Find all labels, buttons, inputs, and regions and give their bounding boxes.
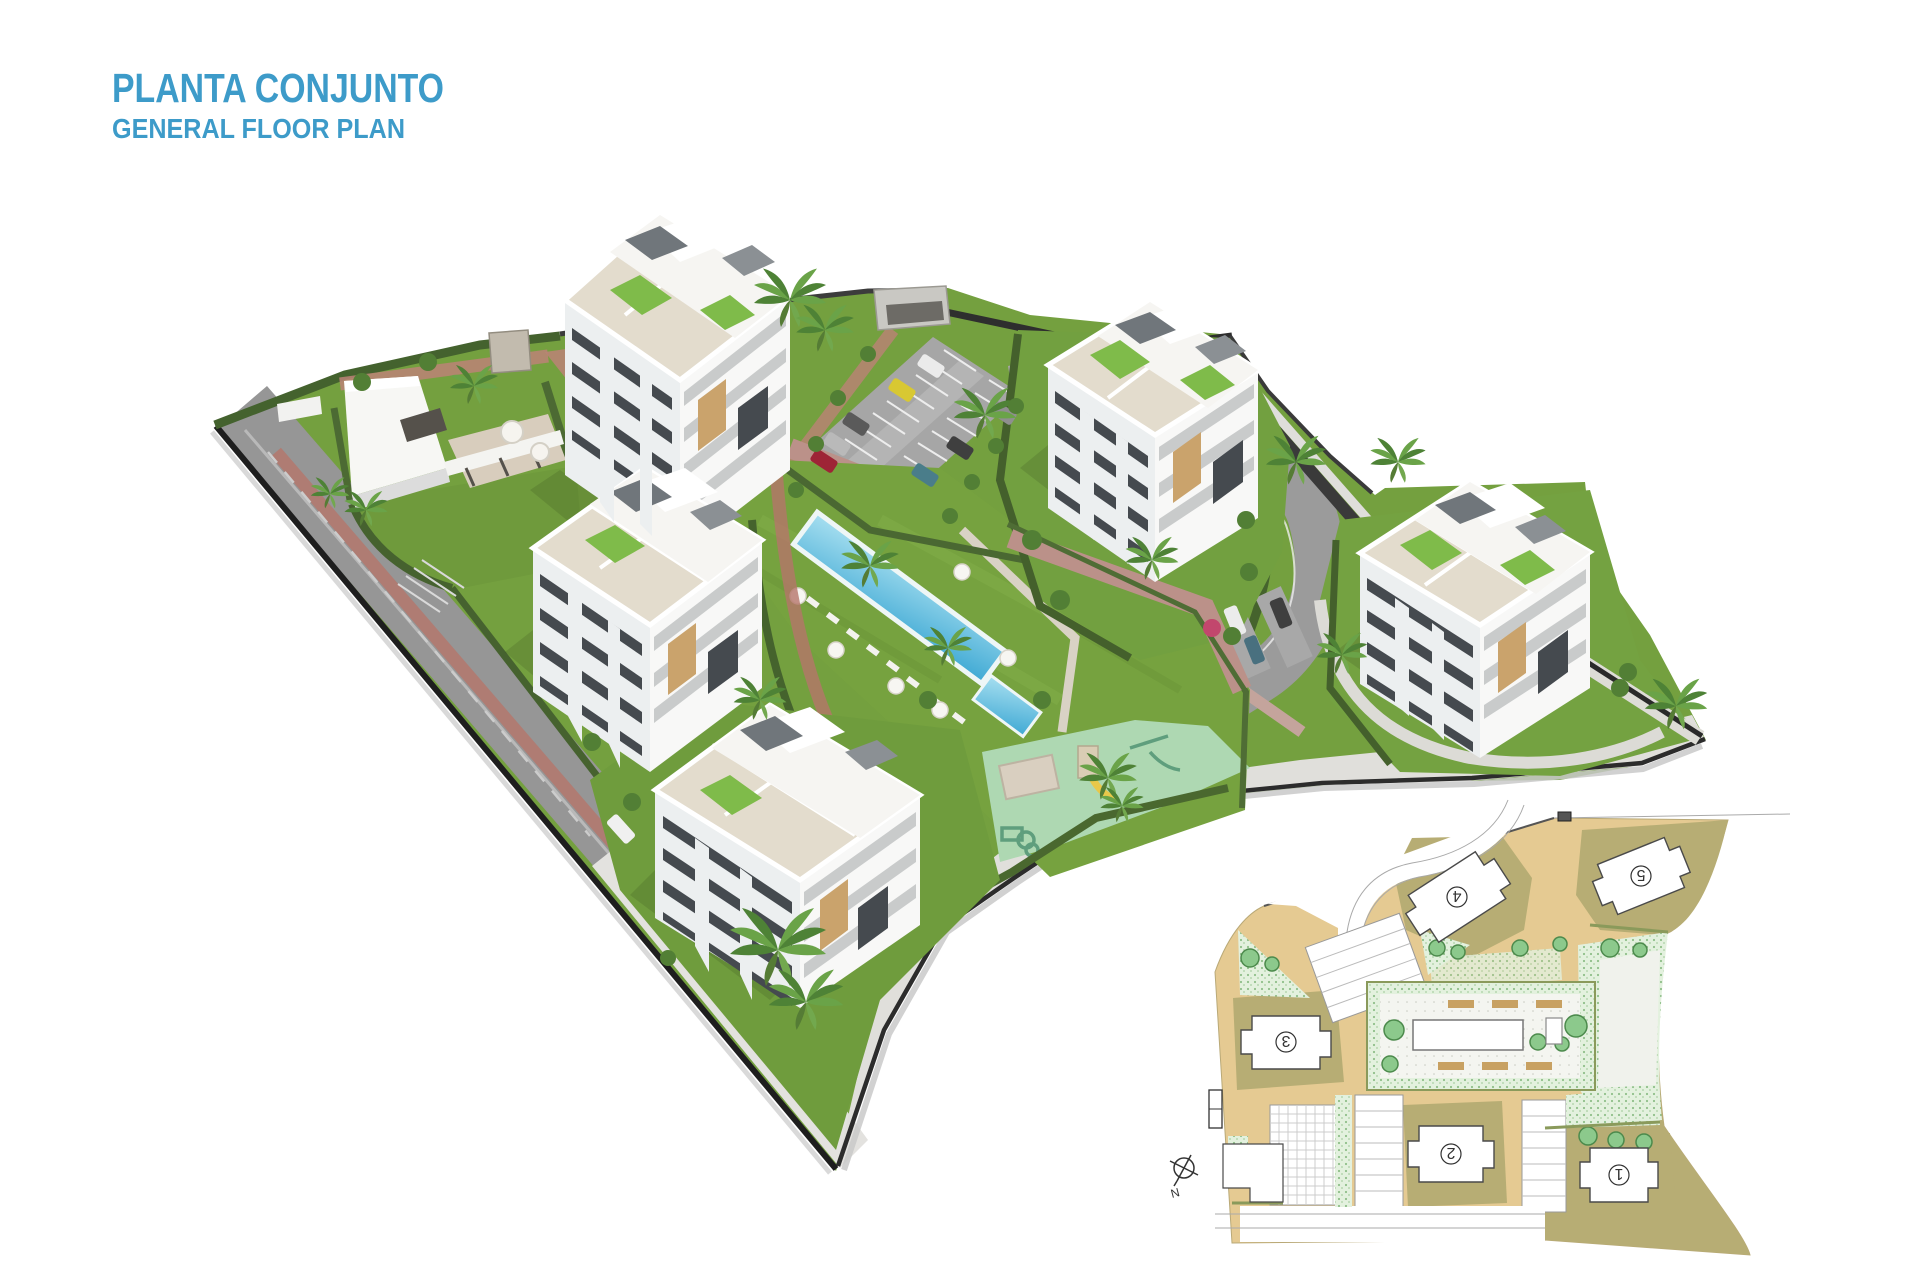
svg-text:1: 1	[1614, 1165, 1623, 1182]
svg-text:4: 4	[1452, 887, 1461, 904]
svg-text:5: 5	[1636, 866, 1645, 883]
svg-text:3: 3	[1281, 1032, 1290, 1049]
svg-text:GENERAL FLOOR PLAN: GENERAL FLOOR PLAN	[112, 113, 405, 144]
svg-text:PLANTA CONJUNTO: PLANTA CONJUNTO	[112, 65, 444, 111]
svg-text:2: 2	[1446, 1144, 1455, 1161]
